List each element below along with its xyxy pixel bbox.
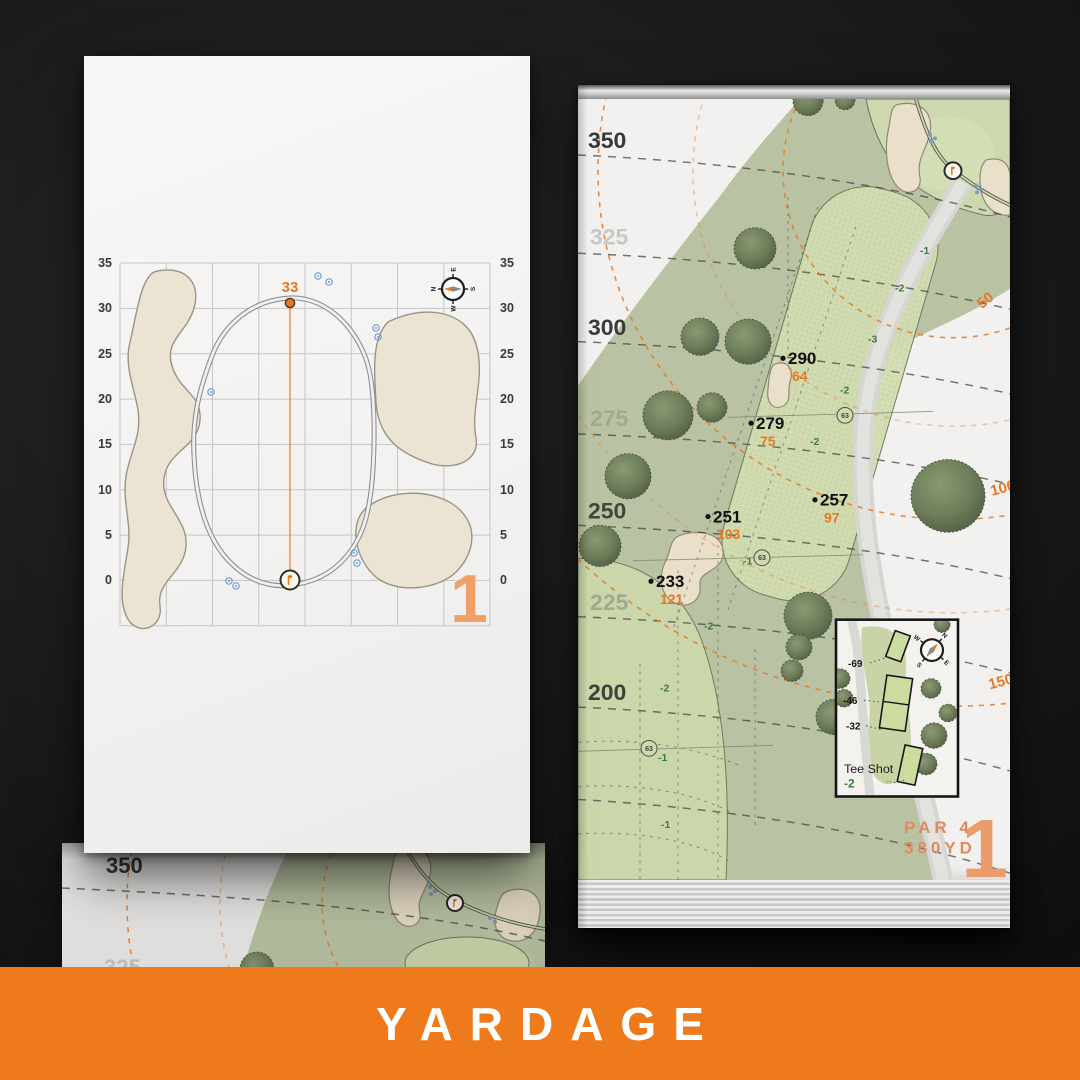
tree <box>781 660 803 682</box>
tree <box>784 592 832 639</box>
green-detail-page: 35 30 25 20 15 10 5 0 35 30 25 20 15 10 … <box>84 56 530 853</box>
hole-page-booklet: 63 63 63 <box>578 85 1010 928</box>
compass-w: W <box>451 305 458 312</box>
tree <box>681 318 719 355</box>
slope-value: -2 <box>895 284 905 295</box>
yardage-banner: YARDAGE <box>0 967 1080 1080</box>
scale-label: 225 <box>590 589 629 615</box>
page-stack-edge <box>578 880 1010 928</box>
tree <box>786 634 812 660</box>
tee-distance: -32 <box>846 722 861 733</box>
arc-label: 100 <box>989 478 1010 500</box>
axis-label-left: 10 <box>98 483 112 497</box>
axis-label-left: 0 <box>105 573 112 587</box>
scale-label: 300 <box>588 314 626 340</box>
pin-flag-icon <box>945 162 962 179</box>
to-green-distance: 97 <box>824 510 840 526</box>
slope-value: -1 <box>658 753 668 764</box>
sprinkler-yardage: 63 <box>841 413 849 420</box>
carry-distance: 251 <box>713 508 741 527</box>
scale-label: 200 <box>588 679 626 705</box>
tree <box>734 228 776 269</box>
scale-label: 350 <box>588 127 626 153</box>
pin-flag-icon <box>447 895 463 911</box>
axis-label-left: 35 <box>98 256 112 270</box>
to-green-distance: 121 <box>660 591 684 607</box>
tree <box>697 393 727 422</box>
page-curl <box>578 85 1010 99</box>
tree <box>643 391 693 440</box>
compass-n: N <box>431 286 438 291</box>
axis-label-left: 15 <box>98 437 112 451</box>
slope-value: -2 <box>660 683 670 694</box>
compass-e: E <box>451 267 458 272</box>
compass-s: S <box>470 286 477 291</box>
carry-distance: 290 <box>788 349 816 368</box>
banner-title: YARDAGE <box>376 997 721 1051</box>
axis-label-right: 15 <box>500 437 514 451</box>
carry-distance: 257 <box>820 491 848 510</box>
hole-number: 1 <box>450 561 488 637</box>
axis-label-left: 5 <box>105 528 112 542</box>
slope-value: -3 <box>868 335 878 346</box>
bunker <box>122 270 200 629</box>
bunker <box>375 312 480 466</box>
scale-label: 325 <box>104 955 141 967</box>
tree <box>725 319 771 364</box>
bunker <box>768 363 792 408</box>
axis-label-right: 0 <box>500 573 507 587</box>
slope-value: -1 <box>661 820 671 831</box>
to-green-distance: 75 <box>760 433 776 449</box>
tee-shot-slope: -2 <box>844 777 855 791</box>
partial-hole-map: 350 325 <box>62 843 545 967</box>
slope-value: -2 <box>840 386 850 397</box>
axis-label-right: 25 <box>500 347 514 361</box>
axis-label-left: 25 <box>98 347 112 361</box>
tree <box>579 525 621 566</box>
sprinkler-yardage: 63 <box>758 555 766 562</box>
slope-value: -1 <box>743 557 753 568</box>
scale-label: 250 <box>588 498 626 524</box>
sprinkler-yardage: 63 <box>645 746 653 753</box>
axis-label-right: 20 <box>500 392 514 406</box>
tee-distance: -46 <box>843 696 858 707</box>
scale-label: 275 <box>590 405 629 431</box>
tee-shot-inset: -69 -46 -32 Tee Shot -2 -- N <box>830 615 964 797</box>
bunkers <box>122 270 479 629</box>
axis-label-right: 30 <box>500 301 514 315</box>
to-green-distance: 64 <box>792 368 808 384</box>
pin-depth-value: 33 <box>282 279 299 296</box>
green-detail-map: 35 30 25 20 15 10 5 0 35 30 25 20 15 10 … <box>84 56 530 853</box>
carry-distance: 279 <box>756 414 784 433</box>
arc-label: 150 <box>987 672 1010 694</box>
tee-shot-title: Tee Shot <box>844 762 894 776</box>
hole-number: 1 <box>961 803 1008 880</box>
pin-flag-icon <box>281 571 300 590</box>
scale-label: 350 <box>106 853 143 878</box>
yardage-scale: 350 325 <box>104 853 143 967</box>
slope-value: -2 <box>704 622 714 633</box>
partial-hole-page: 350 325 <box>62 843 545 967</box>
slope-value: -2 <box>810 437 820 448</box>
axis-label-left: 20 <box>98 392 112 406</box>
slope-value: -1 <box>920 246 930 257</box>
scale-label: 325 <box>590 224 629 250</box>
depth-point <box>285 298 294 307</box>
to-green-distance: 103 <box>717 526 741 542</box>
axis-label-right: 35 <box>500 256 514 270</box>
axis-label-left: 30 <box>98 301 112 315</box>
carry-distance: 233 <box>656 572 684 591</box>
tee-mark: -- <box>886 777 892 787</box>
axis-label-right: 10 <box>500 483 514 497</box>
tee-distance: -69 <box>848 659 863 670</box>
tree <box>605 454 651 499</box>
hole-map: 63 63 63 <box>578 99 1010 880</box>
green-outline <box>194 298 374 586</box>
axis-label-right: 5 <box>500 528 507 542</box>
compass-icon: N E S W <box>431 267 478 312</box>
tree <box>911 460 985 533</box>
